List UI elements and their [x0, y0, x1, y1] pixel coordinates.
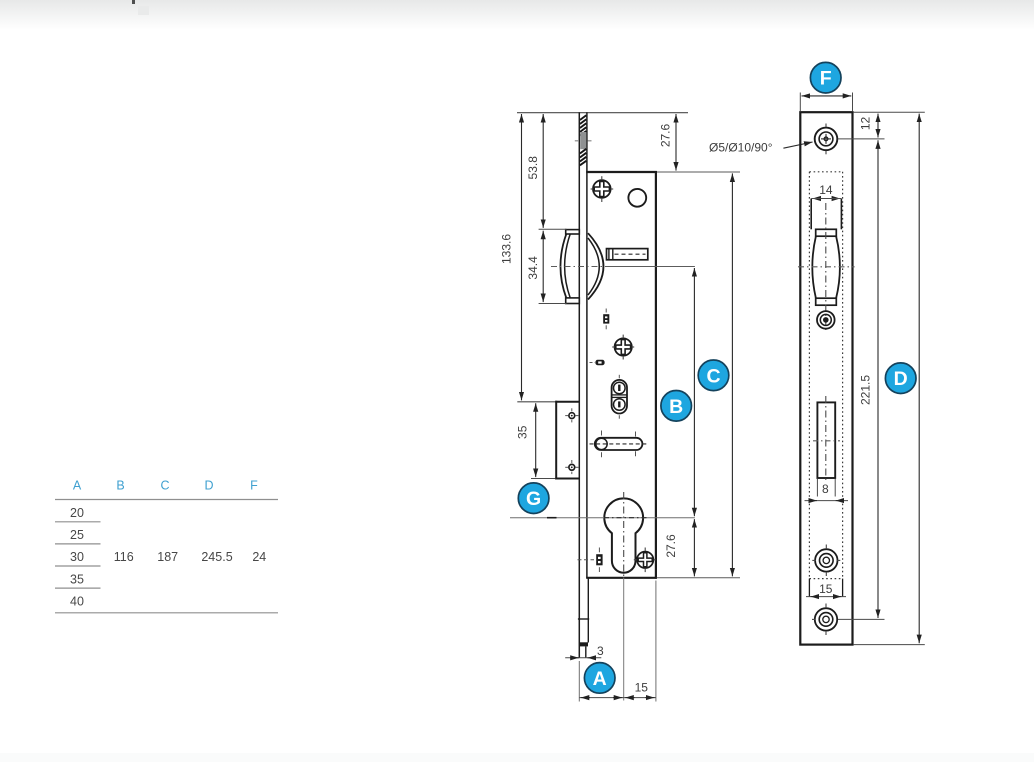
svg-text:221.5: 221.5	[859, 375, 873, 405]
svg-text:15: 15	[819, 582, 833, 596]
svg-text:35: 35	[516, 425, 530, 439]
svg-text:A: A	[73, 479, 82, 493]
svg-text:187: 187	[157, 550, 178, 564]
svg-text:40: 40	[70, 594, 84, 608]
svg-text:D: D	[894, 368, 908, 390]
svg-text:116: 116	[114, 550, 134, 564]
svg-text:14: 14	[819, 183, 833, 197]
svg-text:D: D	[204, 479, 213, 493]
svg-text:B: B	[669, 396, 683, 418]
svg-text:34.4: 34.4	[526, 256, 540, 280]
svg-text:27.6: 27.6	[664, 534, 678, 558]
svg-text:133.6: 133.6	[500, 234, 514, 264]
svg-text:53.8: 53.8	[526, 156, 540, 180]
svg-text:25: 25	[70, 528, 84, 542]
svg-text:Ø5/Ø10/90°: Ø5/Ø10/90°	[709, 141, 773, 155]
svg-text:20: 20	[70, 506, 84, 520]
svg-text:30: 30	[70, 550, 84, 564]
svg-text:12: 12	[859, 117, 873, 131]
svg-text:3: 3	[597, 644, 604, 658]
svg-text:35: 35	[70, 572, 84, 586]
svg-text:C: C	[706, 365, 720, 387]
svg-text:27.6: 27.6	[659, 123, 673, 147]
svg-text:C: C	[160, 479, 169, 493]
svg-text:245.5: 245.5	[201, 550, 232, 564]
svg-text:A: A	[593, 668, 607, 690]
svg-text:24: 24	[252, 550, 266, 564]
svg-text:8: 8	[822, 482, 829, 496]
svg-text:B: B	[116, 479, 124, 493]
svg-text:F: F	[820, 68, 832, 90]
svg-text:G: G	[526, 488, 541, 510]
svg-text:F: F	[250, 479, 258, 493]
svg-text:15: 15	[635, 680, 649, 694]
